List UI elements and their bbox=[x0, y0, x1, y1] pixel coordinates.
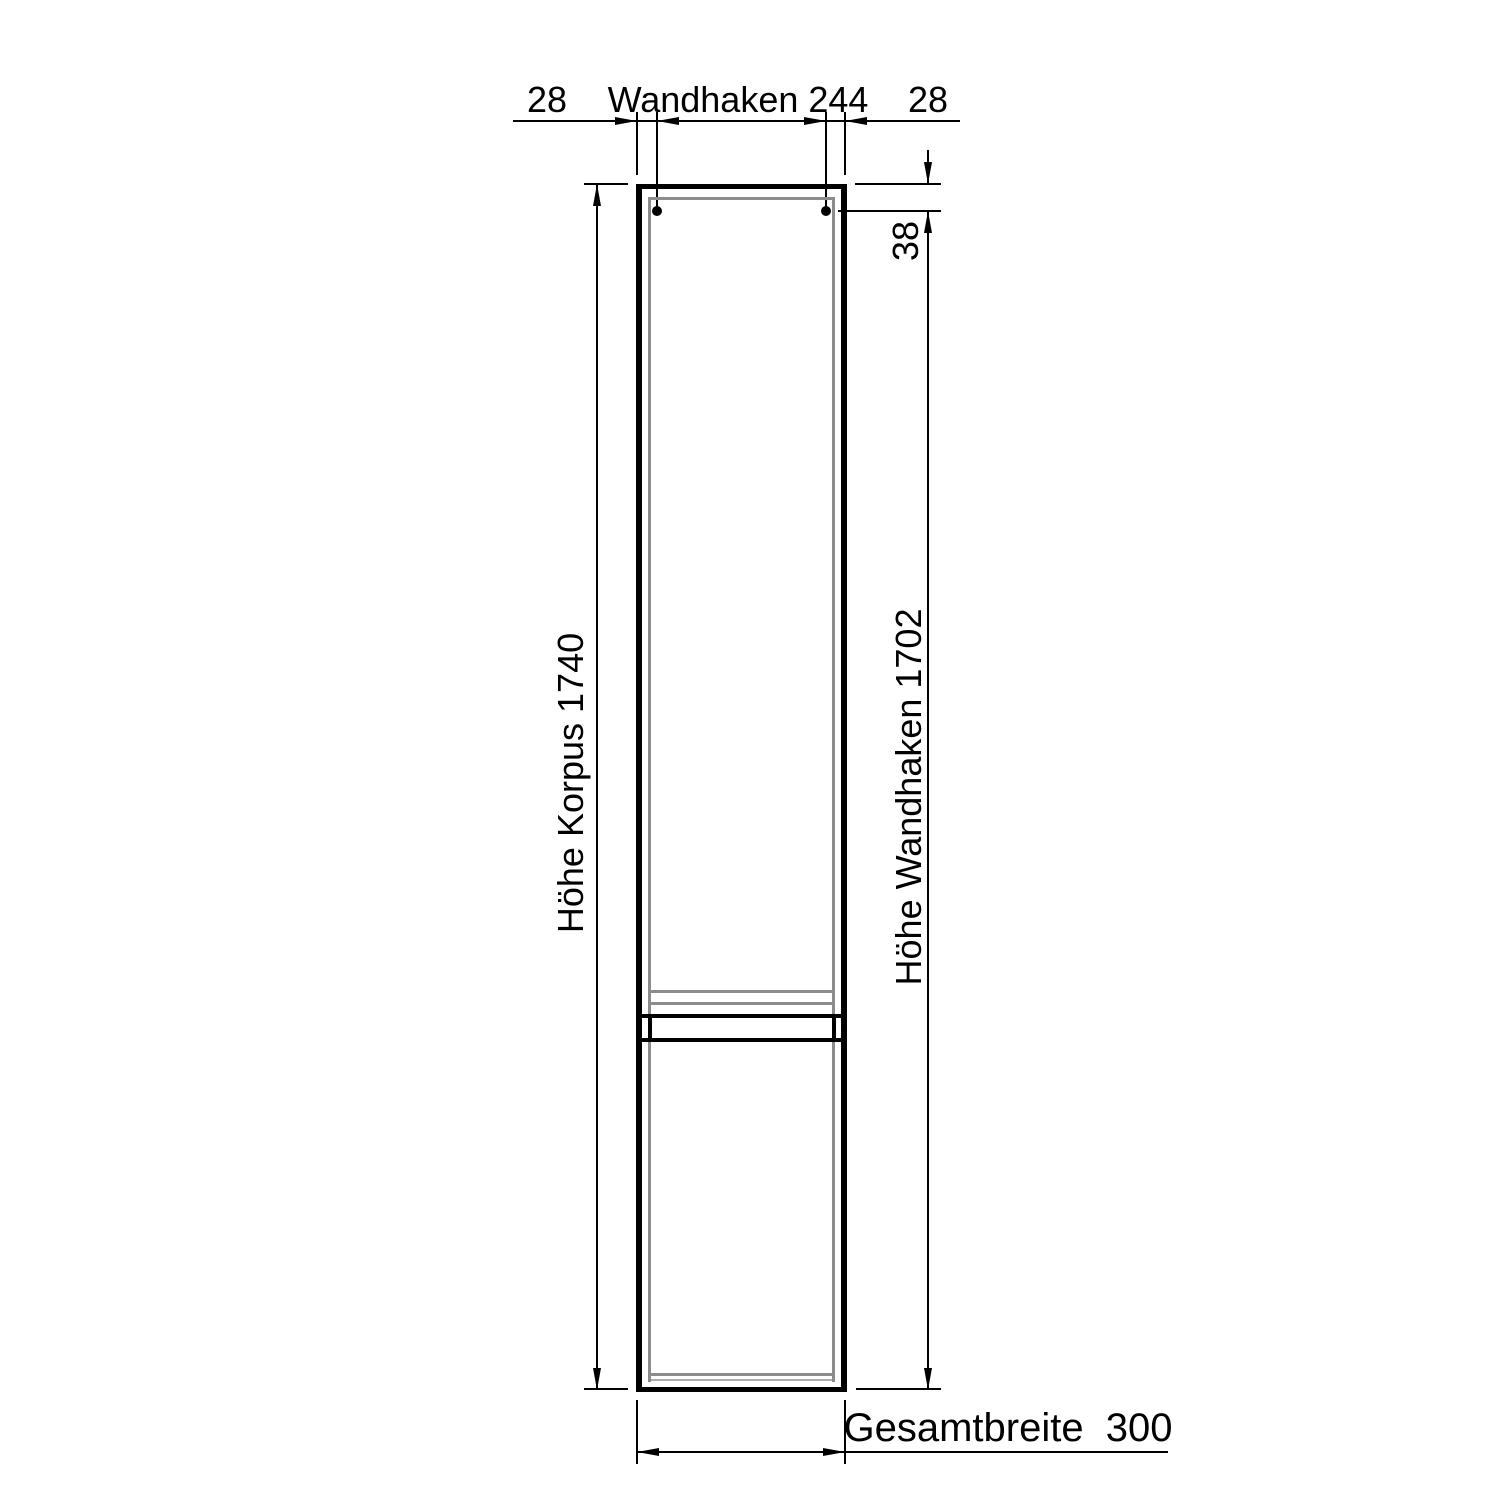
dim-arrow-up-icon bbox=[593, 184, 601, 206]
wall-hook-right-dot bbox=[821, 206, 831, 216]
dim-label-wandhaken-height: Höhe Wandhaken 1702 bbox=[891, 609, 927, 986]
cabinet-bottom-panel-line bbox=[651, 1379, 832, 1381]
dim-arrow-down-icon bbox=[593, 1368, 601, 1390]
left-dim-bottom-tick bbox=[584, 1388, 628, 1390]
dim-arrow-left-icon bbox=[637, 1448, 659, 1456]
cabinet-inner-edge-bottom bbox=[648, 1373, 835, 1376]
dim-label-top-left-offset: 28 bbox=[527, 82, 567, 118]
upper-door-bottom-line bbox=[651, 990, 832, 993]
left-dimension-line bbox=[596, 184, 598, 1390]
dim-arrow-right-icon bbox=[823, 1448, 845, 1456]
cabinet-inner-edge-top bbox=[648, 197, 835, 200]
dim-arrow-up-icon bbox=[924, 211, 932, 233]
left-dim-top-tick bbox=[584, 183, 628, 185]
dim-arrow-down-icon bbox=[924, 162, 932, 184]
cabinet-inner-edge-right bbox=[832, 197, 835, 1382]
dim-label-korpus-height: Höhe Korpus 1740 bbox=[553, 633, 589, 933]
cabinet-outline bbox=[636, 184, 847, 1392]
right-dim-bottom-tick bbox=[856, 1388, 941, 1390]
top-dimension-line bbox=[513, 120, 960, 122]
cabinet-inner-edge-left bbox=[648, 197, 651, 1382]
dim-label-top-right-offset: 28 bbox=[908, 82, 948, 118]
bottom-dimension-line bbox=[637, 1451, 1168, 1453]
dim-label-total-width: Gesamtbreite 300 bbox=[843, 1408, 1172, 1448]
carcass-band-bottom-line bbox=[636, 1038, 847, 1042]
dim-label-wandhaken-span: Wandhaken 244 bbox=[608, 82, 869, 118]
dim-label-hook-offset: 38 bbox=[888, 221, 924, 261]
carcass-band-top-line bbox=[636, 1014, 847, 1018]
technical-drawing-canvas: 28 Wandhaken 244 28 Höhe Korpus 1740 38 … bbox=[0, 0, 1500, 1500]
carcass-band-left-joint bbox=[648, 1014, 652, 1042]
carcass-band-right-joint bbox=[832, 1014, 836, 1042]
wall-hook-left-dot bbox=[652, 206, 662, 216]
shelf-line bbox=[651, 1002, 832, 1005]
dim-arrow-down-icon bbox=[924, 1368, 932, 1390]
